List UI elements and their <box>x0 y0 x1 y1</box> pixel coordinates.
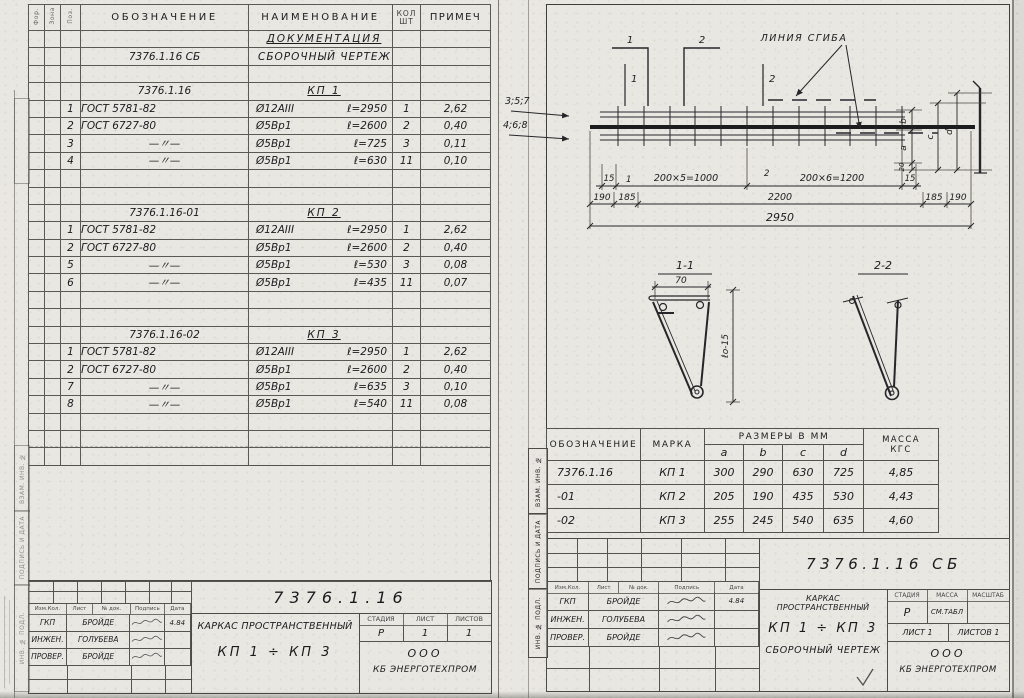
approver-name: ГОЛУБЕВА <box>67 631 130 649</box>
item-name: Ø5Вр1 <box>249 120 292 132</box>
spec-cell-qty: 1 <box>393 344 421 361</box>
spec-cell-pos: 5 <box>61 257 81 274</box>
spec-cell-pos: 7 <box>61 378 81 395</box>
spec-row: 5 —〃— Ø5Вр1ℓ=530 3 0,08 <box>29 257 491 274</box>
stamp-divider <box>681 539 682 581</box>
side-stamp-inv-right: ИНВ. № ПОДЛ. <box>528 588 548 658</box>
item-name: КП 1 <box>249 85 392 97</box>
spec-cell-note <box>421 187 491 204</box>
spec-cell-qty: 1 <box>393 222 421 239</box>
stamp-divider <box>67 665 68 693</box>
spec-cell-note: 0,40 <box>421 239 491 256</box>
spec-cell-note: 0,08 <box>421 257 491 274</box>
spec-cell-zone <box>45 326 61 343</box>
spec-row <box>29 309 491 326</box>
size-col-b: b <box>744 445 783 461</box>
spec-cell-designation <box>81 291 249 308</box>
vzam-label: ВЗАМ. ИНВ. № <box>19 453 26 504</box>
doc-type: СБОРОЧНЫЙ ЧЕРТЕЖ <box>759 645 887 656</box>
sheet-value: 1 <box>403 625 448 642</box>
left-title-block: Изм.Кол. Лист № док. Подпись Дата ГКП БР… <box>28 580 492 694</box>
podpis-label: ПОДПИСЬ И ДАТА <box>19 516 26 579</box>
spec-cell-designation: ГОСТ 6727-80 <box>81 239 249 256</box>
spec-cell-pos: 2 <box>61 361 81 378</box>
stage-value: Р <box>887 601 928 624</box>
col-header-format: Фор. <box>29 5 45 31</box>
spec-cell-note <box>421 170 491 187</box>
size-table: ОБОЗНАЧЕНИЕ МАРКА РАЗМЕРЫ В ММ МАССАКГС … <box>546 428 939 533</box>
spec-cell-zone <box>45 239 61 256</box>
approver-role: ПРОВЕР. <box>29 648 67 666</box>
spec-cell-format <box>29 309 45 326</box>
spec-cell-qty: 2 <box>393 239 421 256</box>
col-header-note: ПРИМЕЧ <box>421 5 491 31</box>
spec-cell-designation <box>81 187 249 204</box>
spec-cell-note: 0,08 <box>421 396 491 413</box>
spec-row <box>29 413 491 430</box>
spec-cell-qty <box>393 187 421 204</box>
spec-cell-pos <box>61 326 81 343</box>
size-cell-b: 190 <box>744 485 783 509</box>
vzam-label: ВЗАМ. ИНВ. № <box>535 456 542 507</box>
spec-cell-qty <box>393 83 421 100</box>
wire-1-mark: 1 <box>631 74 637 85</box>
cut-label-1: 1 <box>627 35 633 46</box>
dim-185-right: 185 <box>925 193 942 203</box>
signature-date: 4.84 <box>165 614 191 632</box>
spec-cell-name: КП 3 <box>249 326 393 343</box>
spec-cell-pos: 6 <box>61 274 81 291</box>
spec-cell-zone <box>45 65 61 82</box>
spec-cell-format <box>29 170 45 187</box>
spec-cell-zone <box>45 222 61 239</box>
spec-row: 7376.1.16 СБ СБОРОЧНЫЙ ЧЕРТЕЖ <box>29 48 491 65</box>
wires-top-label: 3;5;7 <box>505 96 530 107</box>
spec-cell-qty <box>393 326 421 343</box>
spec-cell-format <box>29 291 45 308</box>
size-cell-mass: 4,60 <box>864 509 939 533</box>
org-line2: КБ ЭНЕРГОТЕХПРОМ <box>359 665 491 675</box>
spec-cell-name: Ø5Вр1ℓ=540 <box>249 396 393 413</box>
scale-value <box>967 601 1009 624</box>
stamp-divider <box>607 539 608 581</box>
spec-cell-qty <box>393 448 421 465</box>
signature-cell <box>130 631 164 649</box>
mesh-plan-drawing: 1 2 1 2 ЛИНИЯ СГИБА 15 1 200×5=1000 2 <box>546 8 1008 248</box>
spec-table-body: ДОКУМЕНТАЦИЯ 7376.1.16 СБ СБОРОЧНЫЙ ЧЕРТ… <box>29 31 491 466</box>
spec-cell-designation <box>81 65 249 82</box>
spec-cell-note: 0,40 <box>421 361 491 378</box>
spec-cell-pos <box>61 413 81 430</box>
stamp-divider <box>125 581 126 603</box>
spec-cell-designation: 7376.1.16-02 <box>81 326 249 343</box>
size-col-d: d <box>824 445 864 461</box>
section-2-2-label: 2-2 <box>874 259 892 272</box>
stamp-divider <box>53 581 54 603</box>
size-cell-mark: КП 1 <box>641 461 705 485</box>
spec-cell-pos: 1 <box>61 222 81 239</box>
item-length: ℓ=2950 <box>347 103 392 115</box>
spec-cell-name: Ø5Вр1ℓ=635 <box>249 378 393 395</box>
spec-cell-zone <box>45 100 61 117</box>
spec-cell-note: 0,07 <box>421 274 491 291</box>
spec-row: 7376.1.16 КП 1 <box>29 83 491 100</box>
corner-mark <box>4 596 5 688</box>
size-cell-a: 205 <box>705 485 744 509</box>
size-cell-d: 725 <box>824 461 864 485</box>
dim-190-right: 190 <box>949 193 966 203</box>
spec-cell-name: Ø12АIIIℓ=2950 <box>249 222 393 239</box>
spec-row: 4 —〃— Ø5Вр1ℓ=630 11 0,10 <box>29 152 491 169</box>
spec-cell-name: КП 2 <box>249 204 393 221</box>
col-header-name: НАИМЕНОВАНИЕ <box>249 5 393 31</box>
dim-wire2: 2 <box>764 169 769 179</box>
spec-cell-format <box>29 448 45 465</box>
spec-cell-zone <box>45 309 61 326</box>
size-row: 7376.1.16 КП 1 300 290 630 725 4,85 <box>547 461 939 485</box>
wires-bottom-label: 4;6;8 <box>503 120 528 131</box>
spec-cell-zone <box>45 396 61 413</box>
approval-rows: ГКП БРОЙДЕ 4.84 ИНЖЕН. ГОЛУБЕВА <box>29 614 191 665</box>
detail-dim-c: c <box>926 134 936 139</box>
sheets-value: ЛИСТОВ 1 <box>948 623 1009 642</box>
product-title-area: КАРКАС ПРОСТРАНСТВЕННЫЙ КП 1 ÷ КП 3 СБОР… <box>759 589 888 691</box>
size-cell-c: 540 <box>783 509 824 533</box>
spec-cell-name: Ø5Вр1ℓ=530 <box>249 257 393 274</box>
spec-row <box>29 65 491 82</box>
signature-squiggle <box>130 633 163 646</box>
spec-cell-name: Ø5Вр1ℓ=2600 <box>249 361 393 378</box>
signature-cell <box>659 592 715 611</box>
section-1-1: 1-1 70 ℓо-15 <box>649 259 740 405</box>
item-length: ℓ=435 <box>354 277 392 289</box>
spec-cell-format <box>29 222 45 239</box>
spec-cell-pos <box>61 430 81 447</box>
spec-cell-format <box>29 378 45 395</box>
stamp-empty-rows <box>29 581 192 604</box>
spec-cell-format <box>29 396 45 413</box>
size-row: -02 КП 3 255 245 540 635 4,60 <box>547 509 939 533</box>
dim-span2: 200×6=1200 <box>800 173 864 184</box>
spec-cell-designation: 7376.1.16 <box>81 83 249 100</box>
stamp-divider <box>29 679 191 680</box>
size-col-designation: ОБОЗНАЧЕНИЕ <box>547 429 641 461</box>
spec-cell-note <box>421 413 491 430</box>
spec-cell-designation: —〃— <box>81 152 249 169</box>
approval-row: ГКП БРОЙДЕ 4.84 <box>547 592 759 610</box>
size-cell-designation: -02 <box>547 509 641 533</box>
item-name: Ø12АIII <box>249 346 294 358</box>
spec-cell-pos <box>61 291 81 308</box>
item-name: Ø12АIII <box>249 224 294 236</box>
spec-cell-pos: 2 <box>61 239 81 256</box>
org-cell-left: ООО КБ ЭНЕРГОТЕХПРОМ <box>359 641 491 693</box>
cut-label-2: 2 <box>699 35 705 46</box>
spec-cell-pos: 2 <box>61 117 81 134</box>
podpis-label: ПОДПИСЬ И ДАТА <box>535 520 542 583</box>
spec-cell-zone <box>45 204 61 221</box>
spec-cell-name <box>249 413 393 430</box>
spec-cell-designation: ГОСТ 6727-80 <box>81 361 249 378</box>
zone-label: Зона <box>49 7 56 25</box>
spec-cell-pos <box>61 48 81 65</box>
spec-row: 7 —〃— Ø5Вр1ℓ=635 3 0,10 <box>29 378 491 395</box>
dim-total: 2950 <box>766 211 794 224</box>
approval-row: ПРОВЕР. БРОЙДЕ <box>547 628 759 646</box>
detail-dim-a: a <box>899 145 909 151</box>
approval-rows: ГКП БРОЙДЕ 4.84 ИНЖЕН. ГОЛУБЕВА <box>547 592 759 646</box>
stamp-divider <box>131 665 132 693</box>
spec-cell-designation: —〃— <box>81 274 249 291</box>
spec-cell-qty: 3 <box>393 135 421 152</box>
spec-cell-note: 0,40 <box>421 117 491 134</box>
size-cell-mark: КП 3 <box>641 509 705 533</box>
stamp-divider <box>149 581 150 603</box>
spec-row: 1 ГОСТ 5781-82 Ø12АIIIℓ=2950 1 2,62 <box>29 222 491 239</box>
spec-row: 2 ГОСТ 6727-80 Ø5Вр1ℓ=2600 2 0,40 <box>29 117 491 134</box>
spec-row: 6 —〃— Ø5Вр1ℓ=435 11 0,07 <box>29 274 491 291</box>
size-cell-mass: 4,85 <box>864 461 939 485</box>
item-length: ℓ=540 <box>354 398 392 410</box>
item-name: Ø5Вр1 <box>249 242 292 254</box>
mass-value: СМ.ТАБЛ <box>927 601 968 624</box>
spec-row <box>29 187 491 204</box>
approval-row: ИНЖЕН. ГОЛУБЕВА <box>547 610 759 628</box>
signature-squiggle <box>130 650 163 663</box>
stamp-divider <box>77 581 78 603</box>
signature-date <box>165 648 191 666</box>
spec-cell-note: 2,62 <box>421 222 491 239</box>
spec-cell-note <box>421 65 491 82</box>
spec-cell-zone <box>45 152 61 169</box>
dimension-lines: 15 1 200×5=1000 2 200×6=1200 15 190 185 … <box>587 131 974 229</box>
product-title: КАРКАС ПРОСТРАНСТВЕННЫЙ <box>759 594 887 612</box>
spec-cell-designation <box>81 413 249 430</box>
size-col-a: a <box>705 445 744 461</box>
stage-value: Р <box>359 625 404 642</box>
spec-cell-pos: 8 <box>61 396 81 413</box>
stamp-divider <box>171 581 172 603</box>
spec-cell-designation: ГОСТ 5781-82 <box>81 344 249 361</box>
section-2-2: 2-2 <box>843 259 908 400</box>
specification-table: Фор. Зона Поз. ОБОЗНАЧЕНИЕ НАИМЕНОВАНИЕ … <box>28 4 491 466</box>
spec-cell-designation: —〃— <box>81 135 249 152</box>
spec-cell-format <box>29 344 45 361</box>
signature-date: 4.84 <box>715 592 759 611</box>
spec-cell-name <box>249 430 393 447</box>
spec-cell-designation <box>81 448 249 465</box>
spec-cell-name <box>249 187 393 204</box>
spec-cell-pos <box>61 204 81 221</box>
product-marks: КП 1 ÷ КП 3 <box>191 645 359 660</box>
spec-cell-name: Ø5Вр1ℓ=435 <box>249 274 393 291</box>
spec-cell-pos <box>61 65 81 82</box>
item-length: ℓ=2950 <box>347 224 392 236</box>
spec-cell-name: Ø12АIIIℓ=2950 <box>249 100 393 117</box>
spec-cell-pos <box>61 83 81 100</box>
spec-cell-zone <box>45 274 61 291</box>
spec-cell-name <box>249 309 393 326</box>
spec-cell-name: Ø12АIIIℓ=2950 <box>249 344 393 361</box>
spec-row <box>29 291 491 308</box>
spec-cell-qty: 3 <box>393 257 421 274</box>
dim-15-right: 15 <box>905 174 916 184</box>
col-header-qty: КОЛШТ <box>393 5 421 31</box>
approver-role: ПРОВЕР. <box>547 628 589 647</box>
dim-190-left: 190 <box>593 193 610 203</box>
spec-cell-pos <box>61 170 81 187</box>
spec-cell-pos: 3 <box>61 135 81 152</box>
dim-2200: 2200 <box>768 192 792 203</box>
format-label: Фор. <box>33 8 40 25</box>
product-title: КАРКАС ПРОСТРАНСТВЕННЫЙ <box>191 621 359 632</box>
size-cell-designation: 7376.1.16 <box>547 461 641 485</box>
wire-lines <box>590 106 975 146</box>
size-col-mass: МАССАКГС <box>864 429 939 461</box>
side-stamp-vzam-left: ВЗАМ. ИНВ. № <box>14 445 30 512</box>
spec-cell-qty: 11 <box>393 274 421 291</box>
sheet-value: ЛИСТ 1 <box>887 623 949 642</box>
spec-row <box>29 170 491 187</box>
spec-cell-zone <box>45 378 61 395</box>
approver-name: БРОЙДЕ <box>67 648 130 666</box>
spec-cell-format <box>29 326 45 343</box>
spec-cell-designation <box>81 170 249 187</box>
col-header-pos: Поз. <box>61 5 81 31</box>
inv-label: ИНВ. № ПОДЛ. <box>535 597 542 649</box>
detail-dim-d: d <box>945 129 955 135</box>
spec-cell-format <box>29 100 45 117</box>
spec-cell-name <box>249 170 393 187</box>
spec-cell-note <box>421 48 491 65</box>
spec-cell-format <box>29 48 45 65</box>
spec-cell-zone <box>45 344 61 361</box>
item-length: ℓ=630 <box>354 155 392 167</box>
spec-cell-note: 0,10 <box>421 152 491 169</box>
spec-cell-format <box>29 430 45 447</box>
section-cut-marks: 1 2 1 2 <box>612 35 775 106</box>
spec-cell-format <box>29 274 45 291</box>
spec-cell-pos: 4 <box>61 152 81 169</box>
section-1-1-label: 1-1 <box>676 259 694 272</box>
spec-cell-format <box>29 152 45 169</box>
spec-cell-note <box>421 31 491 48</box>
spec-cell-format <box>29 135 45 152</box>
item-length: ℓ=635 <box>354 381 392 393</box>
approver-role: ИНЖЕН. <box>547 610 589 629</box>
spec-cell-format <box>29 31 45 48</box>
stamp-divider <box>725 539 726 581</box>
section-1-1-width: 70 <box>675 276 687 286</box>
item-length: ℓ=2600 <box>347 364 392 376</box>
size-cell-mark: КП 2 <box>641 485 705 509</box>
stamp-divider <box>641 539 642 581</box>
approver-name: БРОЙДЕ <box>589 628 659 647</box>
spec-cell-note: 2,62 <box>421 100 491 117</box>
spec-cell-designation: ГОСТ 5781-82 <box>81 222 249 239</box>
size-col-sizes: РАЗМЕРЫ В ММ <box>705 429 864 445</box>
spec-row: 3 —〃— Ø5Вр1ℓ=725 3 0,11 <box>29 135 491 152</box>
product-title-area: КАРКАС ПРОСТРАНСТВЕННЫЙ КП 1 ÷ КП 3 <box>191 613 360 693</box>
spec-cell-zone <box>45 31 61 48</box>
spec-cell-zone <box>45 448 61 465</box>
side-stamp-podpis-left: ПОДПИСЬ И ДАТА <box>14 510 30 586</box>
spec-row: ДОКУМЕНТАЦИЯ <box>29 31 491 48</box>
spec-cell-note <box>421 309 491 326</box>
approver-role: ИНЖЕН. <box>29 631 67 649</box>
signature-date <box>715 628 759 647</box>
spec-cell-qty <box>393 204 421 221</box>
item-name: Ø5Вр1 <box>249 364 292 376</box>
spec-cell-format <box>29 413 45 430</box>
size-cell-a: 300 <box>705 461 744 485</box>
size-col-c: c <box>783 445 824 461</box>
org-cell-right: ООО КБ ЭНЕРГОТЕХПРОМ <box>887 641 1009 691</box>
item-name: КП 3 <box>249 329 392 341</box>
spec-cell-qty <box>393 309 421 326</box>
spec-cell-qty: 2 <box>393 117 421 134</box>
size-cell-c: 630 <box>783 461 824 485</box>
spec-cell-format <box>29 117 45 134</box>
item-length: ℓ=2600 <box>347 242 392 254</box>
mass-top: МАССА <box>882 435 920 445</box>
signature-squiggle <box>665 613 707 626</box>
spec-cell-designation: —〃— <box>81 396 249 413</box>
spec-cell-name: КП 1 <box>249 83 393 100</box>
org-line2: КБ ЭНЕРГОТЕХПРОМ <box>887 665 1009 675</box>
detail-dim-20: 20 <box>898 162 906 171</box>
spec-cell-zone <box>45 413 61 430</box>
corner-mark <box>9 600 10 684</box>
spec-cell-format <box>29 361 45 378</box>
stamp-divider <box>547 567 759 568</box>
signature-cell <box>659 610 715 629</box>
size-table-body: 7376.1.16 КП 1 300 290 630 725 4,85 -01 … <box>547 461 939 533</box>
stamp-divider <box>101 581 102 603</box>
spec-cell-qty <box>393 291 421 308</box>
approval-row: ГКП БРОЙДЕ 4.84 <box>29 614 191 631</box>
spec-row: 7376.1.16-01 КП 2 <box>29 204 491 221</box>
size-cell-b: 290 <box>744 461 783 485</box>
signature-squiggle <box>665 595 707 608</box>
signature-squiggle <box>665 631 707 644</box>
size-row: -01 КП 2 205 190 435 530 4,43 <box>547 485 939 509</box>
left-approval-stamp: Изм.Кол. Лист № док. Подпись Дата ГКП БР… <box>29 581 192 693</box>
spec-cell-qty <box>393 430 421 447</box>
side-stamp-inv-left: ИНВ. № ПОДЛ. <box>14 584 30 692</box>
signature-cell <box>130 614 164 632</box>
item-length: ℓ=725 <box>354 138 392 150</box>
spec-cell-note <box>421 448 491 465</box>
signature-cell <box>130 648 164 666</box>
fold-line-label: ЛИНИЯ СГИБА <box>760 33 848 44</box>
spec-cell-format <box>29 187 45 204</box>
spec-cell-zone <box>45 187 61 204</box>
size-cell-mass: 4,43 <box>864 485 939 509</box>
left-sheet-right-border <box>498 0 499 698</box>
dim-span1: 200×5=1000 <box>654 173 718 184</box>
main-bar <box>590 125 975 129</box>
spec-cell-note <box>421 83 491 100</box>
scan-margin <box>1014 0 1024 698</box>
spec-cell-pos <box>61 448 81 465</box>
spec-cell-pos <box>61 31 81 48</box>
stage-block-left: СТАДИЯ ЛИСТ ЛИСТОВ Р 1 1 ООО КБ ЭНЕРГОТЕ… <box>359 613 491 693</box>
approval-row: ИНЖЕН. ГОЛУБЕВА <box>29 631 191 648</box>
spec-cell-format <box>29 239 45 256</box>
spec-cell-zone <box>45 135 61 152</box>
size-cell-d: 635 <box>824 509 864 533</box>
